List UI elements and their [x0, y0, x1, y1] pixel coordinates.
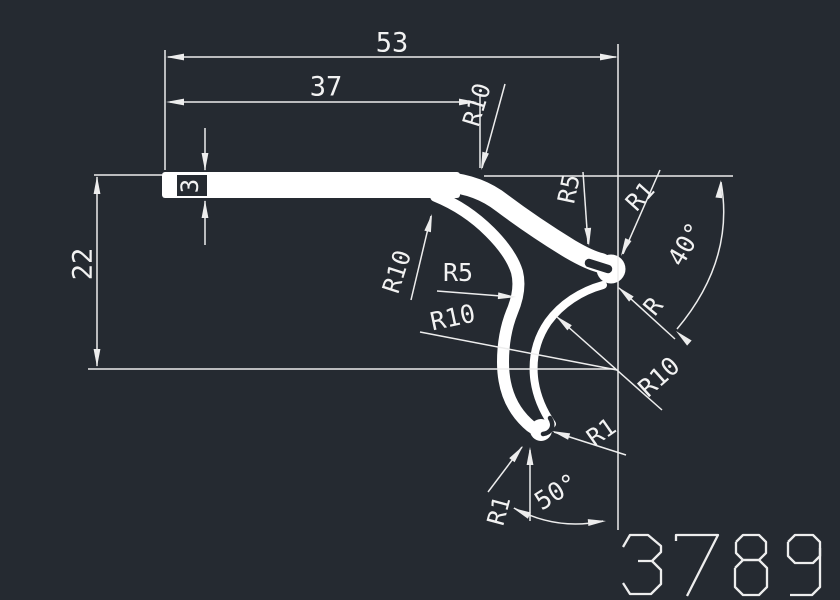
dim-label-r5-ear: R5 [552, 172, 585, 206]
dim-label-dim-53: 53 [376, 28, 409, 59]
cad-drawing-canvas: 5337R10322R10R5R10R5R140°RR10R150°R1 [0, 0, 840, 600]
dim-label-dim-37: 37 [310, 72, 343, 103]
cad-profile-drawing: 5337R10322R10R5R10R5R140°RR10R150°R1 [0, 0, 840, 600]
drawing-background [0, 0, 840, 600]
profile-ear-slit [589, 263, 608, 269]
dim-label-r5-mid: R5 [443, 258, 473, 287]
dim-label-dim-22: 22 [68, 248, 99, 281]
dim-label-dim-3: 3 [176, 179, 204, 193]
